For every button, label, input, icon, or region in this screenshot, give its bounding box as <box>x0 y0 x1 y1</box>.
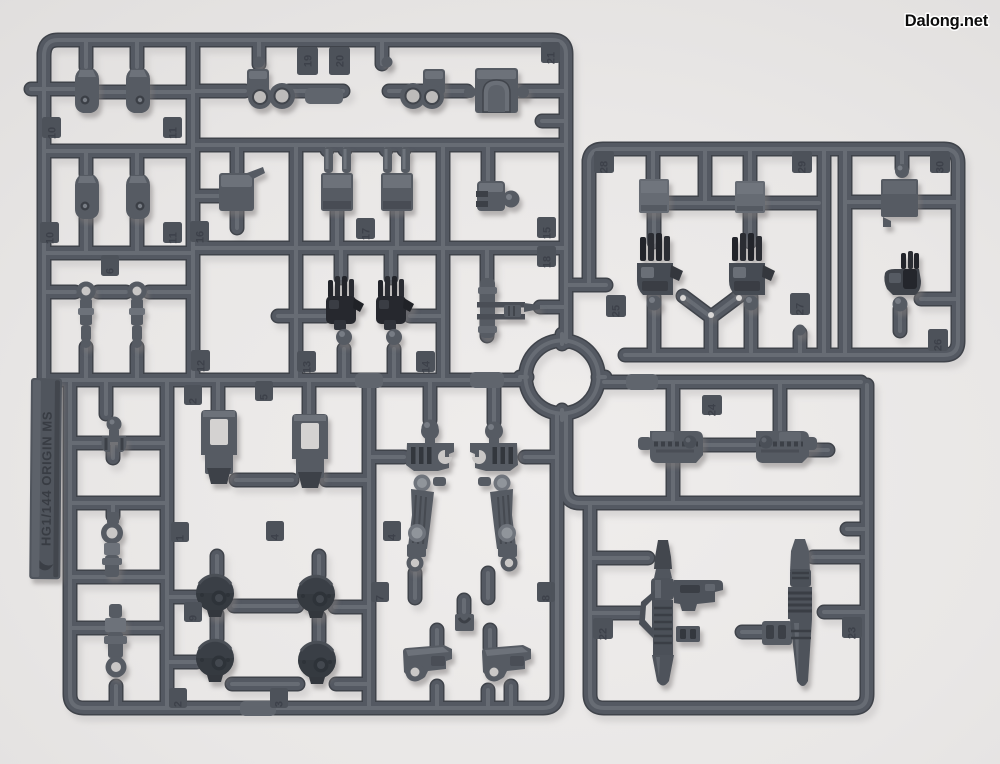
svg-text:12: 12 <box>196 360 208 372</box>
svg-text:23: 23 <box>847 627 859 639</box>
svg-text:19: 19 <box>303 55 315 67</box>
svg-text:Dalong.net: Dalong.net <box>905 12 989 30</box>
svg-text:27: 27 <box>795 303 807 315</box>
svg-text:9: 9 <box>188 615 200 621</box>
svg-text:1: 1 <box>175 535 187 541</box>
svg-text:8: 8 <box>541 595 553 601</box>
svg-text:4: 4 <box>270 533 282 540</box>
svg-text:10: 10 <box>45 232 57 244</box>
svg-text:2: 2 <box>173 701 185 707</box>
svg-text:17: 17 <box>361 228 373 240</box>
svg-text:26: 26 <box>933 339 945 351</box>
svg-text:22: 22 <box>598 628 610 640</box>
svg-text:28: 28 <box>599 161 611 173</box>
svg-text:18: 18 <box>542 256 554 268</box>
svg-text:20: 20 <box>335 55 347 67</box>
svg-text:5: 5 <box>259 394 271 400</box>
svg-text:29: 29 <box>797 161 809 173</box>
svg-text:3: 3 <box>274 701 286 707</box>
svg-text:25: 25 <box>611 305 623 317</box>
svg-text:HG1/144 ORIGIN MS: HG1/144 ORIGIN MS <box>39 411 55 546</box>
svg-text:21: 21 <box>546 52 558 64</box>
svg-text:13: 13 <box>302 361 314 373</box>
svg-text:24: 24 <box>707 403 719 416</box>
svg-text:4: 4 <box>387 533 399 540</box>
svg-text:2: 2 <box>188 398 200 404</box>
svg-text:15: 15 <box>542 227 554 239</box>
svg-text:10: 10 <box>47 127 59 139</box>
svg-text:11: 11 <box>168 232 180 244</box>
svg-text:11: 11 <box>168 127 180 139</box>
svg-text:30: 30 <box>935 161 947 173</box>
svg-text:7: 7 <box>375 595 387 601</box>
svg-text:16: 16 <box>195 231 207 243</box>
svg-text:6: 6 <box>105 268 117 274</box>
svg-text:14: 14 <box>421 360 433 373</box>
